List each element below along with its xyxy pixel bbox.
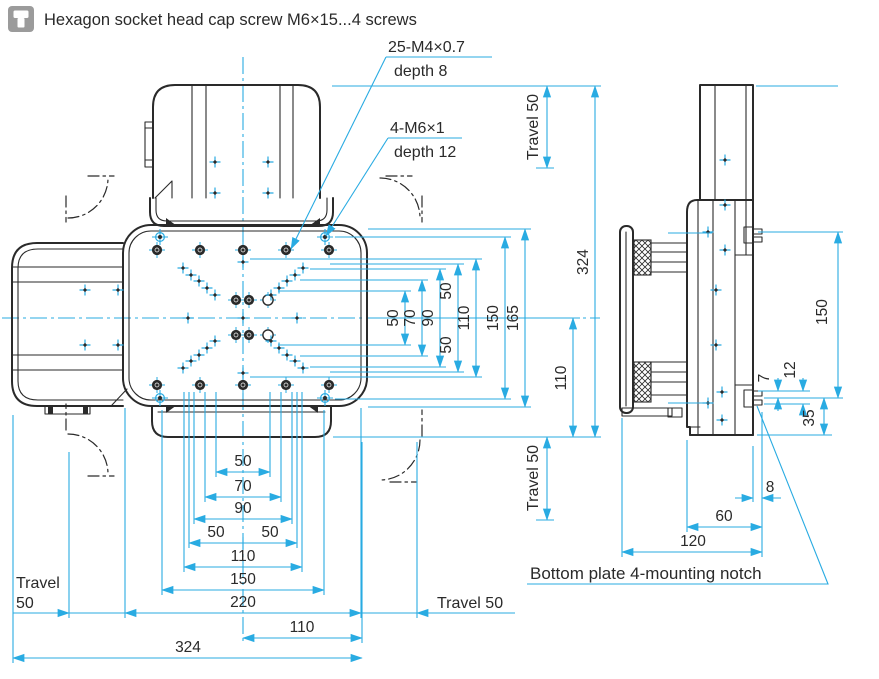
dim-v-70: 70 <box>402 309 419 327</box>
centerlines <box>2 57 600 645</box>
travel-bottom-right-h: Travel 50 <box>437 595 503 612</box>
top-extension-flange <box>150 198 333 226</box>
dim-h-70: 70 <box>234 478 252 495</box>
side-column <box>700 85 753 200</box>
dim-h-150: 150 <box>230 571 256 588</box>
dim-h-50: 50 <box>234 453 252 470</box>
travel-left-line1: Travel <box>16 575 60 592</box>
callout-m4-line1: 25-M4×0.7 <box>388 39 465 56</box>
dim-v-150: 150 <box>485 305 502 331</box>
bottom-extension-outline <box>152 406 331 437</box>
side-view <box>620 85 762 435</box>
dim-v-50: 50 <box>385 309 402 327</box>
callout-m4-line2: depth 8 <box>394 63 447 80</box>
dim-side-12: 12 <box>782 361 799 378</box>
catalog-drawing-page: Hexagon socket head cap screw M6×15...4 … <box>0 0 879 679</box>
dim-h-90: 90 <box>234 500 252 517</box>
bearing-block-bottom <box>634 362 651 402</box>
dim-side-7: 7 <box>756 374 773 383</box>
technical-drawing: Hexagon socket head cap screw M6×15...4 … <box>0 0 879 679</box>
side-body <box>687 200 753 435</box>
dim-v-165: 165 <box>505 305 522 331</box>
top-extension-outline <box>153 85 320 198</box>
callout-m6-line2: depth 12 <box>394 144 456 161</box>
dim-v-90: 90 <box>420 309 437 327</box>
dim-h-50a: 50 <box>207 524 225 541</box>
bearing-block-top <box>634 240 651 275</box>
dim-h-110-offset: 110 <box>290 619 315 636</box>
mounting-notch-top <box>744 227 762 243</box>
dim-v-110: 110 <box>456 305 473 330</box>
plan-hole-pattern <box>80 157 338 407</box>
dim-v-50a: 50 <box>438 282 455 300</box>
dim-v-50b: 50 <box>438 336 455 354</box>
header: Hexagon socket head cap screw M6×15...4 … <box>8 6 417 32</box>
callout-m6-line1: 4-M6×1 <box>390 120 445 137</box>
dim-h-220: 220 <box>230 594 256 611</box>
header-note: Hexagon socket head cap screw M6×15...4 … <box>44 11 417 29</box>
dim-h-324: 324 <box>175 639 201 656</box>
dim-side-8: 8 <box>766 479 775 496</box>
travel-left-line2: 50 <box>16 595 34 612</box>
travel-bottom-right-v: Travel 50 <box>525 445 542 511</box>
dim-v-110-lower: 110 <box>553 365 570 390</box>
dim-h-110: 110 <box>231 548 256 565</box>
dim-v-324: 324 <box>575 249 592 275</box>
callout-bottom-note: Bottom plate 4-mounting notch <box>530 564 762 583</box>
dim-side-60: 60 <box>715 508 733 525</box>
dim-side-120: 120 <box>680 533 706 550</box>
dim-h-50b: 50 <box>261 524 279 541</box>
annotations: 25-M4×0.7 depth 8 4-M6×1 depth 12 Bottom… <box>16 39 831 656</box>
dim-side-35: 35 <box>801 409 818 426</box>
mounting-notch-bottom <box>744 390 762 407</box>
dim-side-150: 150 <box>814 299 831 325</box>
travel-top-right: Travel 50 <box>525 94 542 160</box>
